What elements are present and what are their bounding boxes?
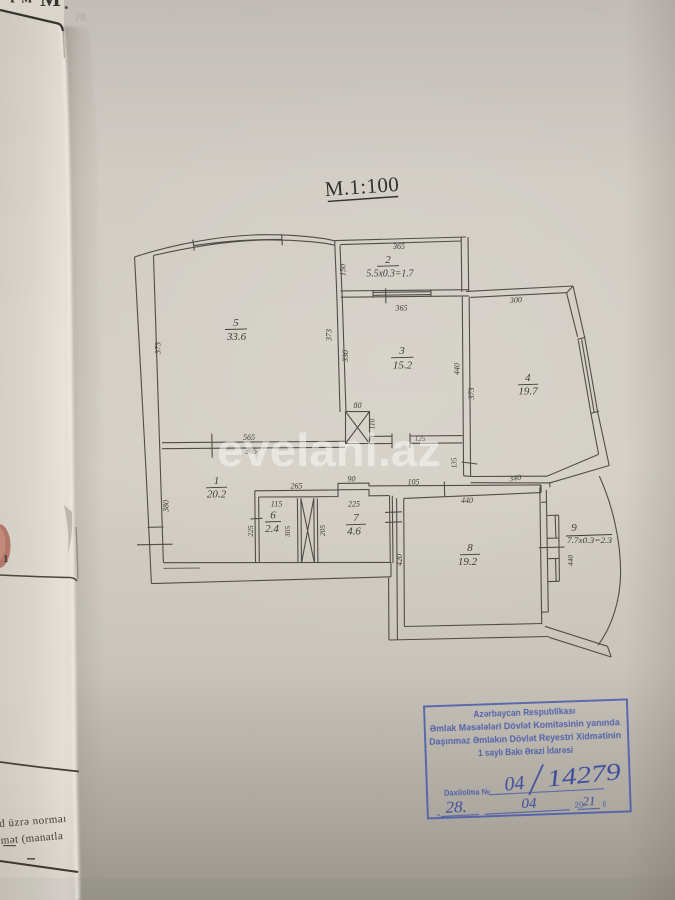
svg-text:1: 1 — [214, 475, 220, 487]
svg-text:80: 80 — [354, 401, 362, 410]
svg-text:380: 380 — [162, 500, 171, 513]
svg-text:225: 225 — [246, 525, 255, 537]
svg-text:20.2: 20.2 — [207, 489, 227, 501]
svg-text:21: 21 — [582, 793, 596, 808]
svg-text:420: 420 — [395, 554, 404, 566]
svg-text:365: 365 — [395, 304, 408, 313]
svg-text:305: 305 — [283, 526, 292, 539]
svg-text:7: 7 — [353, 512, 359, 524]
svg-text:4: 4 — [525, 372, 531, 384]
svg-text:205: 205 — [318, 525, 327, 537]
svg-text:19.2: 19.2 — [458, 556, 478, 568]
svg-text:440: 440 — [566, 555, 575, 567]
svg-text:и мера: и мера — [240, 0, 274, 12]
svg-text:.: . — [168, 0, 171, 12]
svg-text:105: 105 — [408, 478, 420, 487]
svg-text:340: 340 — [508, 473, 522, 484]
svg-text:365: 365 — [392, 242, 405, 251]
svg-text:evelani.az: evelani.az — [217, 424, 441, 476]
svg-text:4.6: 4.6 — [347, 526, 361, 538]
svg-text:373: 373 — [154, 342, 163, 355]
svg-text:il: il — [602, 800, 606, 809]
svg-text:225: 225 — [348, 500, 360, 509]
svg-text:150: 150 — [339, 264, 348, 276]
svg-text:440: 440 — [461, 496, 473, 505]
svg-text:1: 1 — [3, 553, 9, 565]
svg-text:135: 135 — [451, 457, 459, 468]
svg-text:373: 373 — [467, 388, 476, 401]
svg-text:373: 373 — [325, 329, 334, 342]
svg-text:15.2: 15.2 — [393, 360, 413, 372]
svg-text:„: „ — [437, 807, 441, 818]
svg-text:19.7: 19.7 — [518, 386, 538, 398]
svg-text:9: 9 — [571, 522, 577, 534]
svg-text:2: 2 — [385, 254, 391, 266]
svg-text:04: 04 — [504, 772, 526, 796]
svg-text:М: М — [40, 0, 61, 11]
svg-text:28.: 28. — [445, 797, 467, 817]
svg-text:г м: г м — [10, 0, 32, 7]
svg-text:Daxilolma №: Daxilolma № — [444, 787, 490, 798]
svg-text:330: 330 — [341, 350, 350, 363]
svg-text:3: 3 — [398, 345, 405, 357]
svg-text:04: 04 — [521, 796, 537, 813]
svg-text:5.5x0.3=1.7: 5.5x0.3=1.7 — [367, 269, 415, 280]
svg-text:2.4: 2.4 — [265, 523, 279, 535]
svg-text:8: 8 — [467, 542, 473, 554]
svg-text:115: 115 — [271, 500, 282, 509]
svg-text:265: 265 — [291, 482, 303, 491]
svg-text:440: 440 — [453, 363, 462, 375]
svg-text:33.6: 33.6 — [226, 331, 247, 343]
svg-text:6: 6 — [270, 510, 276, 522]
svg-text:300: 300 — [509, 295, 522, 305]
svg-text:5: 5 — [233, 317, 239, 329]
svg-text:?8: ?8 — [74, 10, 86, 24]
svg-text:г. о: г. о — [585, 0, 602, 14]
svg-text:7.7x0.3=2.3: 7.7x0.3=2.3 — [567, 535, 612, 545]
